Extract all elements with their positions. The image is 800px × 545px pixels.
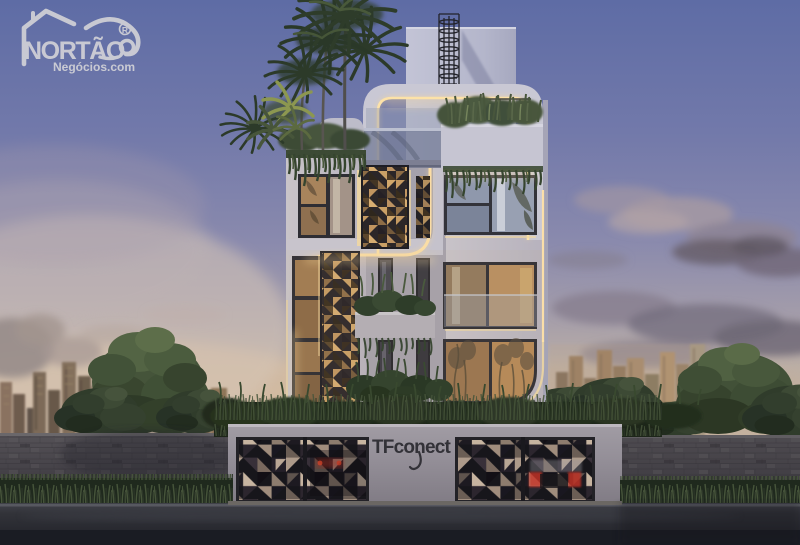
svg-text:Negócios.com: Negócios.com xyxy=(53,60,135,74)
svg-text:TFconect: TFconect xyxy=(372,437,452,458)
svg-text:R: R xyxy=(122,25,128,35)
